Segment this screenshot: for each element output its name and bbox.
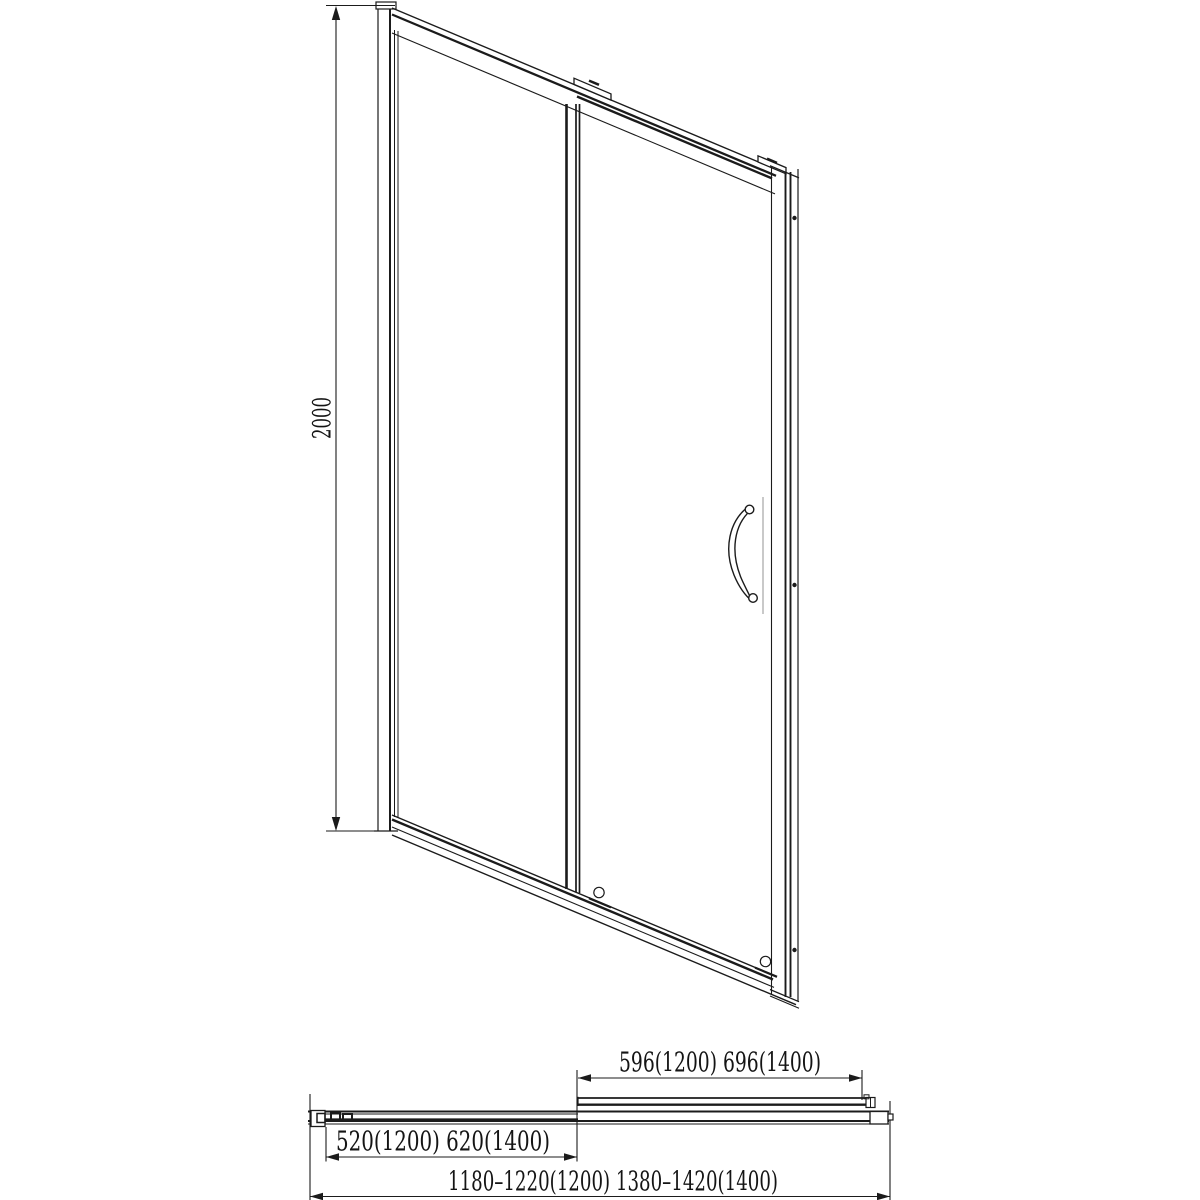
left-wall-profile: [374, 2, 398, 831]
dimension-sliding-panel: 596(1200) 696(1400): [578, 1048, 862, 1082]
overall-width-dimension-label: 1180–1220(1200) 1380–1420(1400): [448, 1167, 778, 1198]
sliding-glass-top-edge: [577, 97, 772, 179]
sliding-panel-dimension-label: 596(1200) 696(1400): [619, 1048, 821, 1079]
arrow-left-icon: [578, 1074, 591, 1081]
right-wall-profile: [770, 166, 799, 1009]
technical-drawing: 2000: [0, 0, 1200, 1200]
arrow-right-icon: [564, 1153, 577, 1160]
screw-dot: [792, 583, 796, 587]
screw-dot: [792, 216, 796, 220]
front-view: 2000: [308, 2, 800, 1008]
bottom-rail: [392, 815, 796, 1005]
plan-sliding-panel: [578, 1095, 875, 1108]
arrow-right-icon: [849, 1074, 862, 1081]
dimension-fixed-panel: 520(1200) 620(1400): [326, 1127, 577, 1161]
top-rail: [392, 8, 776, 194]
handle-icon: [729, 507, 753, 602]
height-dimension-label: 2000: [308, 397, 337, 439]
fixed-panel-dimension-label: 520(1200) 620(1400): [336, 1127, 550, 1158]
sliding-panel-stile: [567, 104, 580, 893]
door-handle: [729, 497, 763, 614]
arrow-left-icon: [310, 1193, 323, 1200]
plan-track: [308, 1112, 889, 1125]
dimension-overall-width: 1180–1220(1200) 1380–1420(1400): [310, 1167, 890, 1200]
screw-dot: [792, 948, 796, 952]
plan-view: 596(1200) 696(1400) 520(1200) 620(1400) …: [308, 1048, 893, 1200]
arrow-up-icon: [332, 6, 340, 20]
plan-fixed-panel: [325, 1114, 578, 1120]
arrow-right-icon: [877, 1193, 890, 1200]
height-dimension: 2000: [308, 6, 396, 832]
arrow-down-icon: [332, 817, 340, 831]
